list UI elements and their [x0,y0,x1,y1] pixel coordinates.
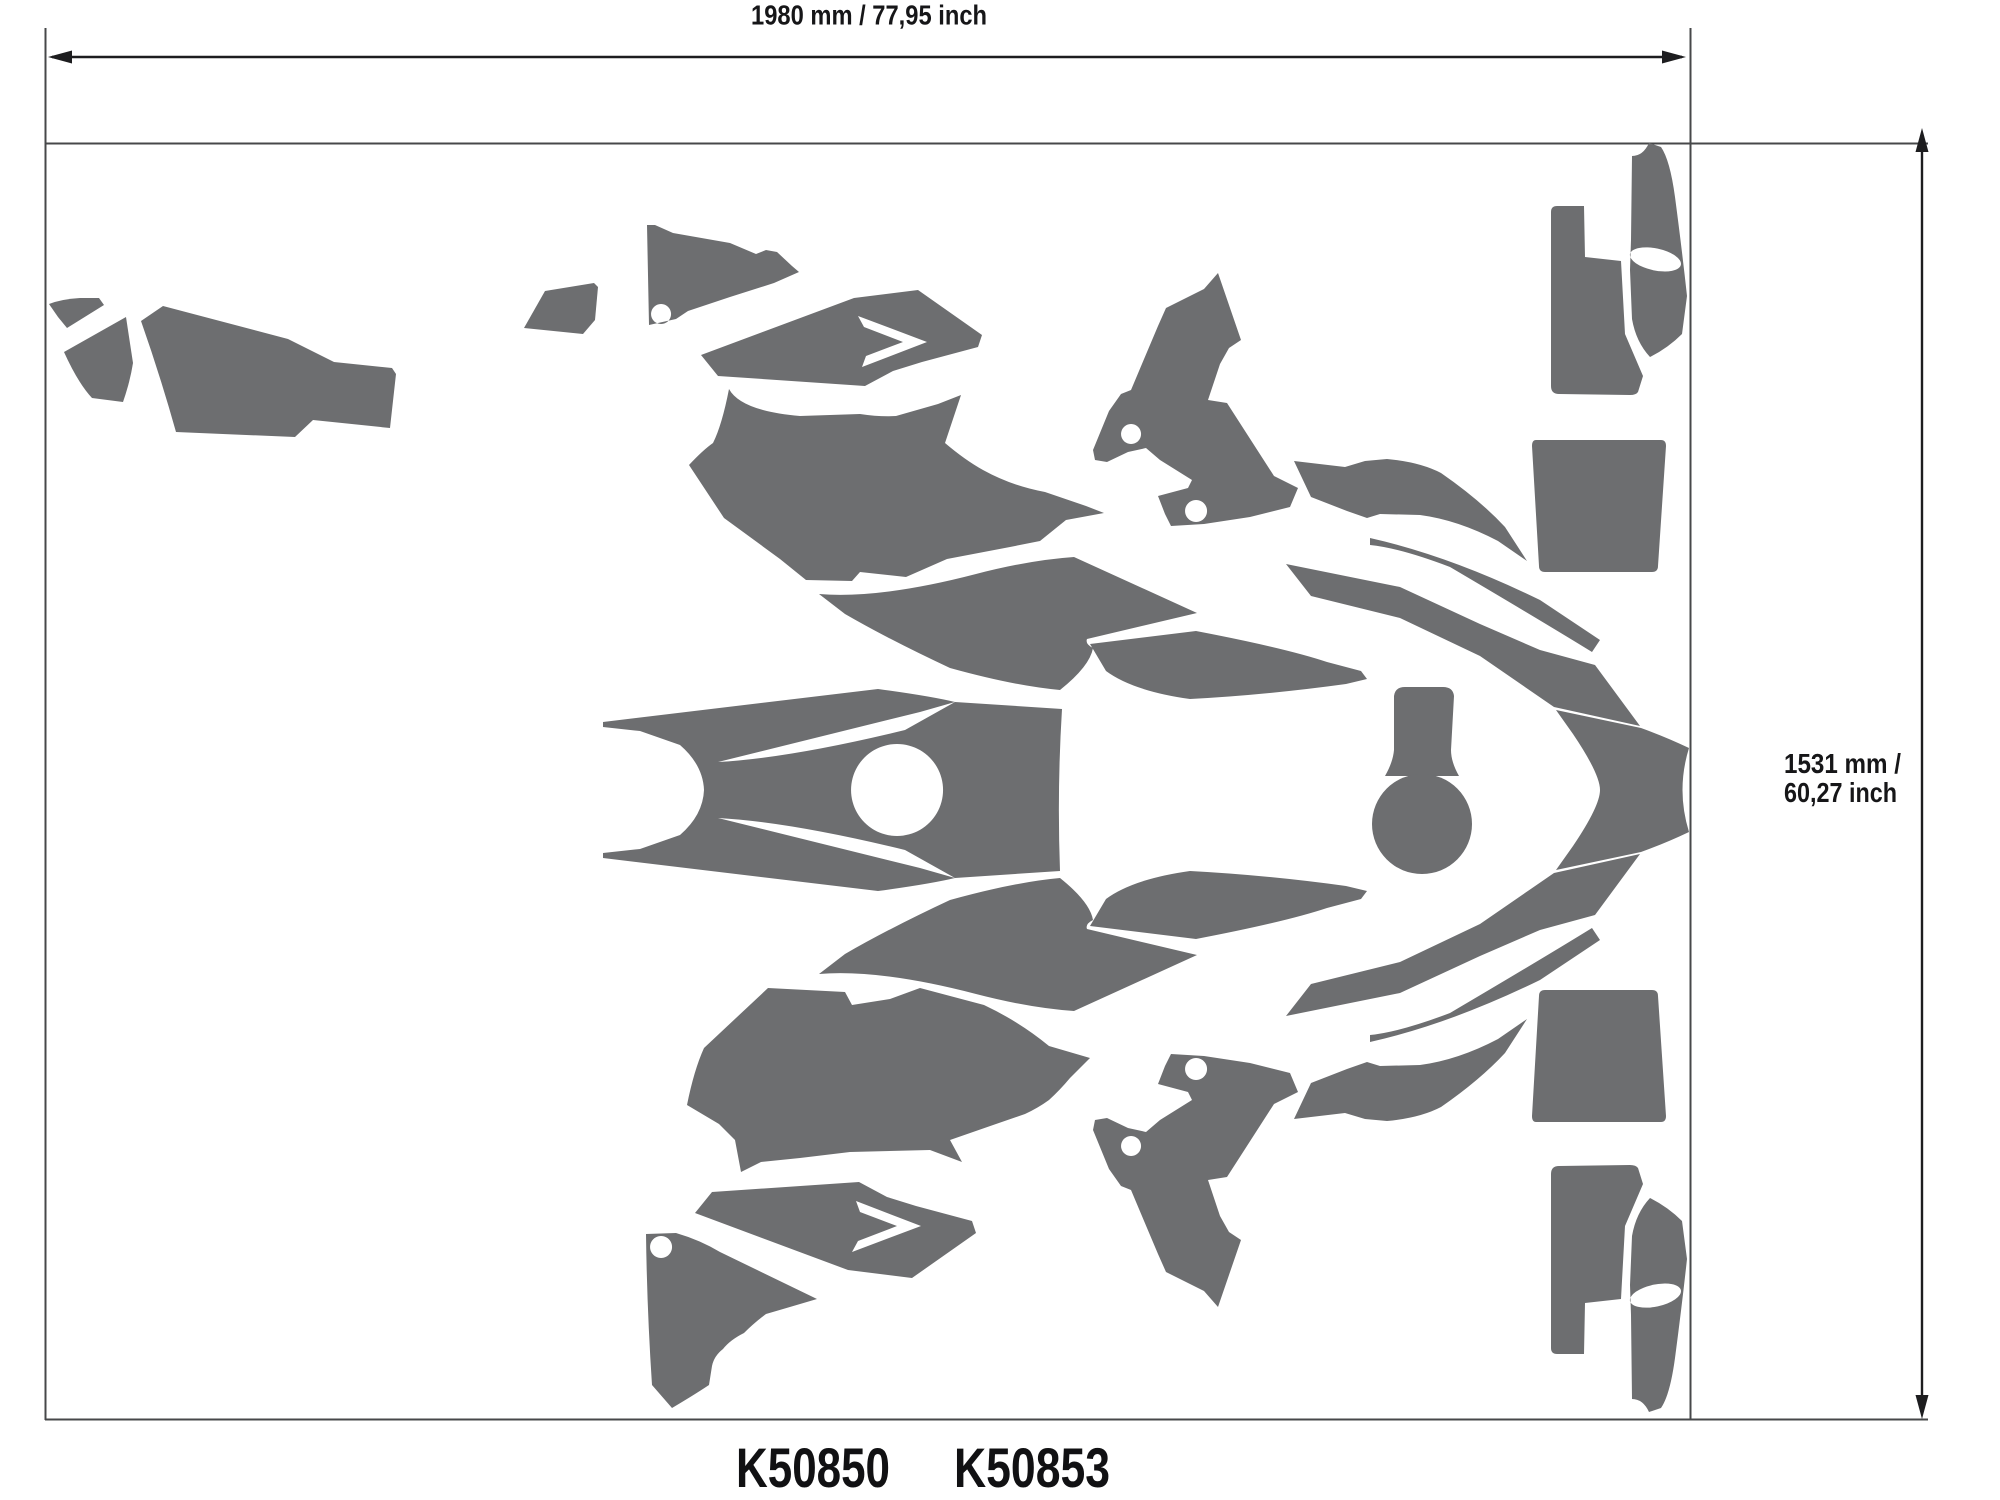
svg-text:1531 mm /: 1531 mm / [1784,748,1901,779]
svg-text:1980 mm / 77,95 inch: 1980 mm / 77,95 inch [751,0,987,31]
svg-text:K50850: K50850 [736,1436,890,1499]
svg-text:K50853: K50853 [954,1436,1110,1499]
svg-text:60,27 inch: 60,27 inch [1784,777,1897,808]
